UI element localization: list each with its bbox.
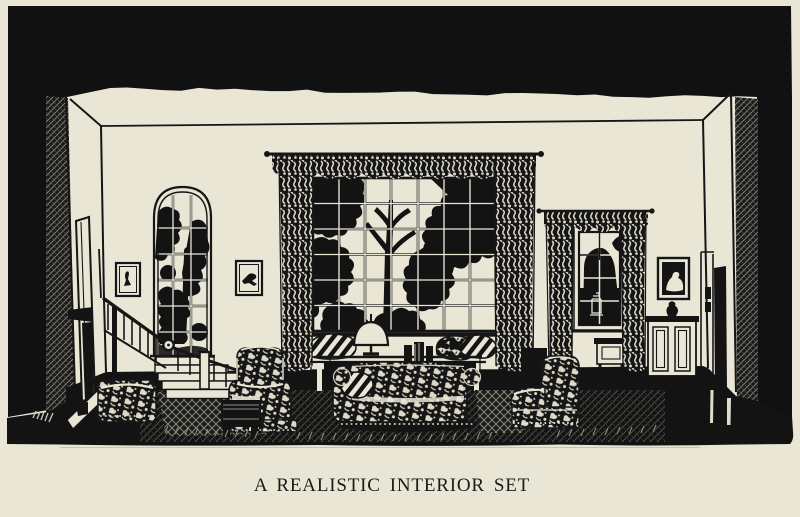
svg-text:A REALISTIC INTERIOR SET: A REALISTIC INTERIOR SET [254, 475, 530, 496]
